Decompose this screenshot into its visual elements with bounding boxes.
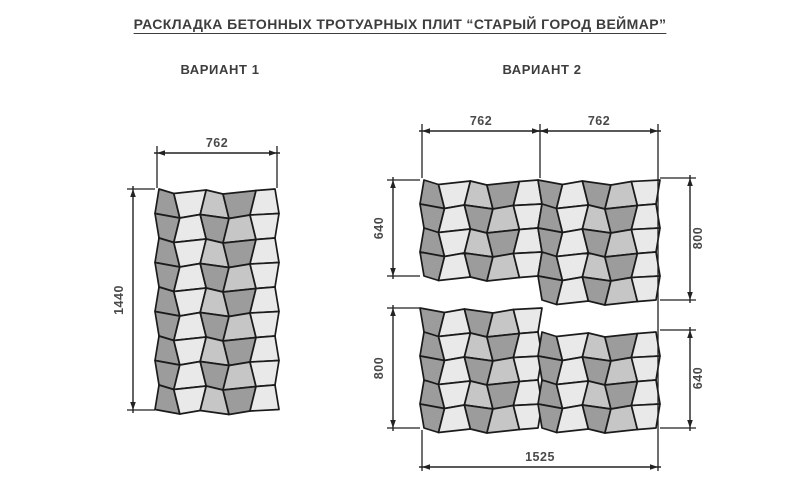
dimension-arrow [390,420,396,428]
dimension-arrow [650,464,658,470]
paving-tile [631,356,660,382]
dimension-762: 762 [537,114,661,134]
paving-tile [513,308,542,334]
paving-block-variant2-blockB-left [420,308,542,433]
dim-label: 800 [372,357,386,379]
dimension-arrow [390,180,396,188]
dimension-arrow [390,308,396,316]
paving-block-variant2-blockB-right [538,332,660,433]
dimension-762: 762 [419,114,543,134]
dim-label: 640 [691,367,705,389]
dimension-arrow [422,464,430,470]
paving-tile [631,276,660,302]
dim-label: 1525 [525,450,555,464]
paving-tile [631,228,660,254]
dimension-arrow [687,420,693,428]
paving-block-variant2-blockA-right [538,180,660,305]
dimension-arrow [687,178,693,186]
dimension-arrow [269,150,277,156]
paving-tile [250,312,279,338]
dimension-arrow [390,268,396,276]
paving-tile [631,404,660,430]
paving-tile [513,404,542,430]
dim-label: 762 [470,114,492,128]
dim-label: 762 [206,136,228,150]
dimension-arrow [540,128,548,134]
paving-block-variant1-panel [155,189,279,415]
dimension-arrow [687,330,693,338]
dimension-640: 640 [372,177,396,279]
page: РАСКЛАДКА БЕТОННЫХ ТРОТУАРНЫХ ПЛИТ “СТАР… [0,0,800,496]
dimension-1440: 1440 [112,186,136,413]
dimension-arrow [650,128,658,134]
paving-tile [250,361,279,387]
dim-label: 640 [372,217,386,239]
dimension-762: 762 [154,136,280,156]
dimension-640: 640 [687,327,705,431]
dimension-arrow [687,292,693,300]
dimension-arrow [422,128,430,134]
dim-label: 1440 [112,285,126,315]
paving-tile [250,263,279,289]
paving-tile [513,356,542,382]
dimension-arrow [130,402,136,410]
paving-tile [250,214,279,240]
paving-layout-diagram: 76214407627626408008006401525 [0,0,800,496]
dimension-800: 800 [372,305,396,431]
dimension-arrow [130,189,136,197]
paving-tile [631,180,660,206]
dimension-1525: 1525 [419,450,661,470]
dimension-800: 800 [687,175,705,303]
dim-label: 800 [691,227,705,249]
dim-label: 762 [588,114,610,128]
dimension-arrow [157,150,165,156]
paving-block-variant2-blockA-left [420,180,542,281]
